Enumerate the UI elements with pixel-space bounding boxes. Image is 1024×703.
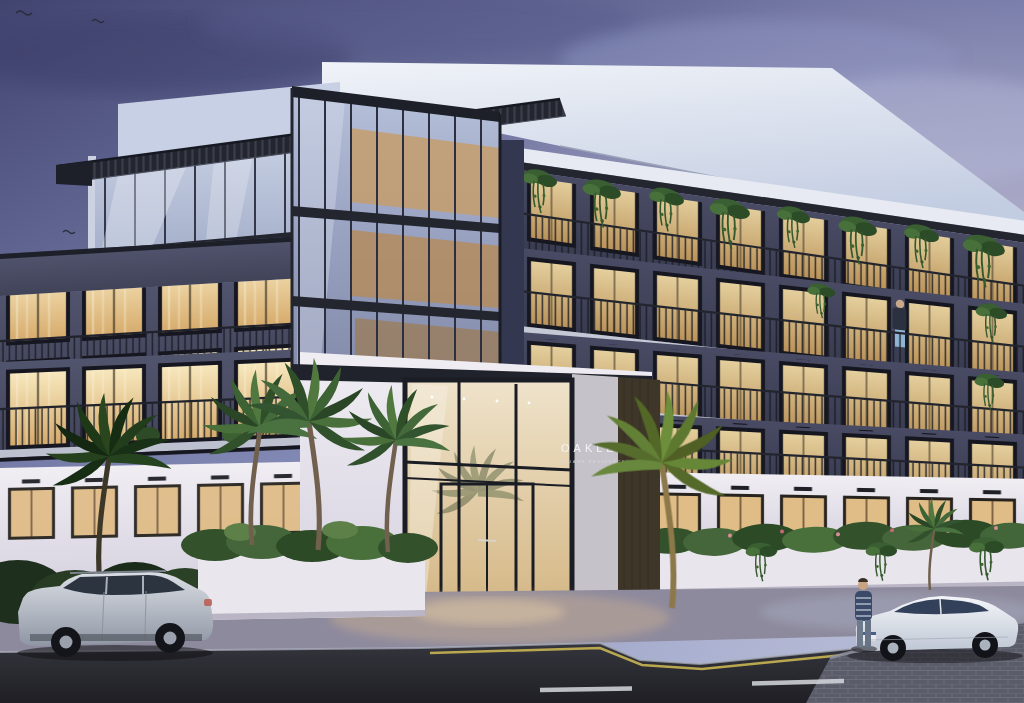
entrance-glass bbox=[405, 380, 572, 618]
sign-wall bbox=[572, 374, 618, 626]
center-planter bbox=[181, 521, 438, 620]
architectural-rendering: OAKLEY SQUARE RESIDENCES bbox=[0, 0, 1024, 703]
